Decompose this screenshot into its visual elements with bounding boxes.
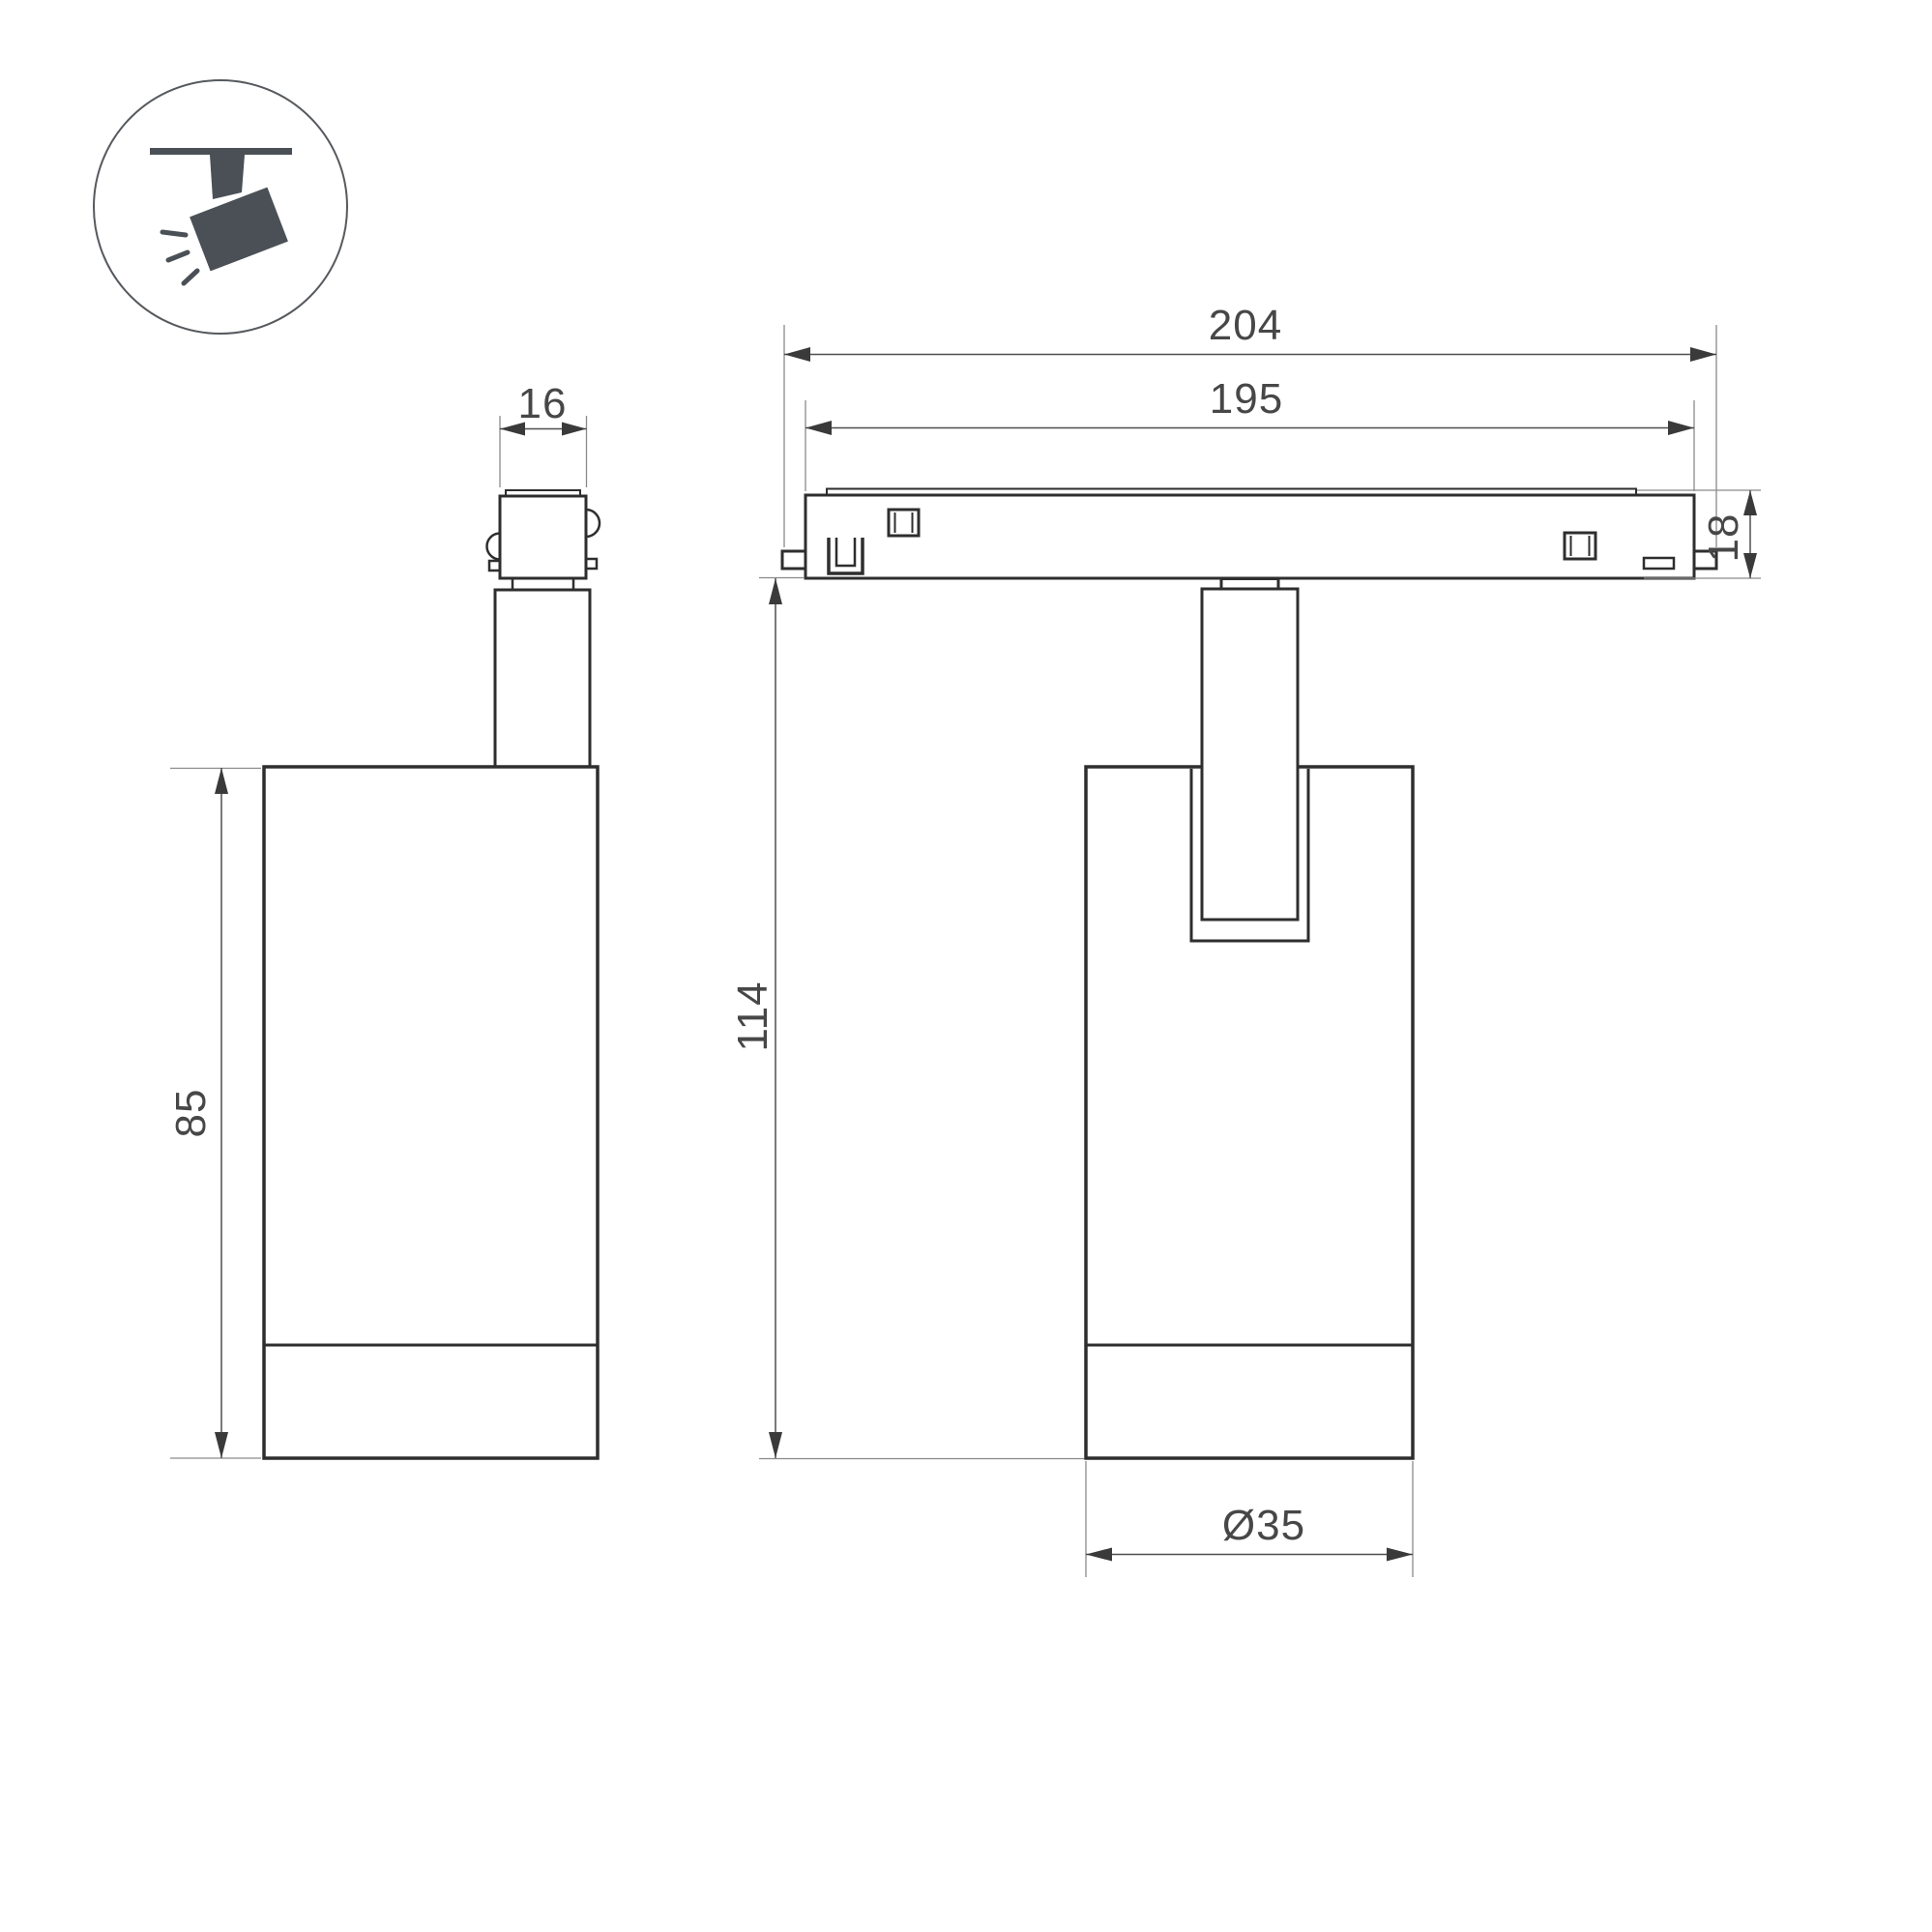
- track-end-tab-left: [782, 551, 805, 569]
- side-view: [264, 490, 600, 1458]
- front-stem: [1202, 589, 1298, 920]
- dim-label-18: 18: [1700, 513, 1747, 563]
- side-connector-tab-left: [489, 561, 500, 571]
- dim-label-195: 195: [1210, 375, 1283, 423]
- side-body: [264, 767, 598, 1458]
- arrowhead: [1668, 421, 1694, 435]
- drawing-svg: 16 85 204 195 18: [0, 0, 1932, 1932]
- dimension-drawing-canvas: 16 85 204 195 18: [0, 0, 1932, 1932]
- dim-track-length: 195: [805, 375, 1694, 491]
- arrowhead: [215, 768, 228, 794]
- front-view: [782, 489, 1716, 1459]
- track-body: [805, 495, 1694, 578]
- side-neck: [512, 578, 573, 590]
- dim-label-114: 114: [729, 981, 776, 1051]
- icon-mount-stem: [210, 155, 245, 199]
- dim-connector-width: 16: [500, 380, 587, 487]
- arrowhead: [784, 347, 810, 362]
- dim-label-16: 16: [518, 380, 568, 427]
- side-connector-ear-left: [487, 534, 501, 560]
- arrowhead: [805, 421, 832, 435]
- side-connector-tab-right: [586, 559, 597, 569]
- dim-body-height: 85: [167, 768, 261, 1458]
- side-connector-ear-right: [586, 510, 600, 537]
- icon-ceiling-bar: [150, 148, 292, 155]
- dim-overall-height: 114: [729, 578, 1084, 1459]
- arrowhead: [769, 1432, 782, 1458]
- dim-label-dia35: Ø35: [1222, 1502, 1305, 1549]
- arrowhead: [1690, 347, 1716, 362]
- arrowhead: [1743, 490, 1757, 515]
- arrowhead: [1086, 1548, 1112, 1562]
- dim-label-85: 85: [167, 1089, 215, 1138]
- arrowhead: [1387, 1548, 1413, 1562]
- dim-label-204: 204: [1209, 302, 1282, 349]
- spotlight-icon: [94, 80, 347, 334]
- side-connector: [500, 496, 586, 578]
- front-neck: [1221, 579, 1278, 590]
- dim-body-diameter: Ø35: [1086, 1461, 1413, 1577]
- side-stem: [495, 590, 590, 767]
- arrowhead: [769, 578, 782, 604]
- arrowhead: [215, 1432, 228, 1458]
